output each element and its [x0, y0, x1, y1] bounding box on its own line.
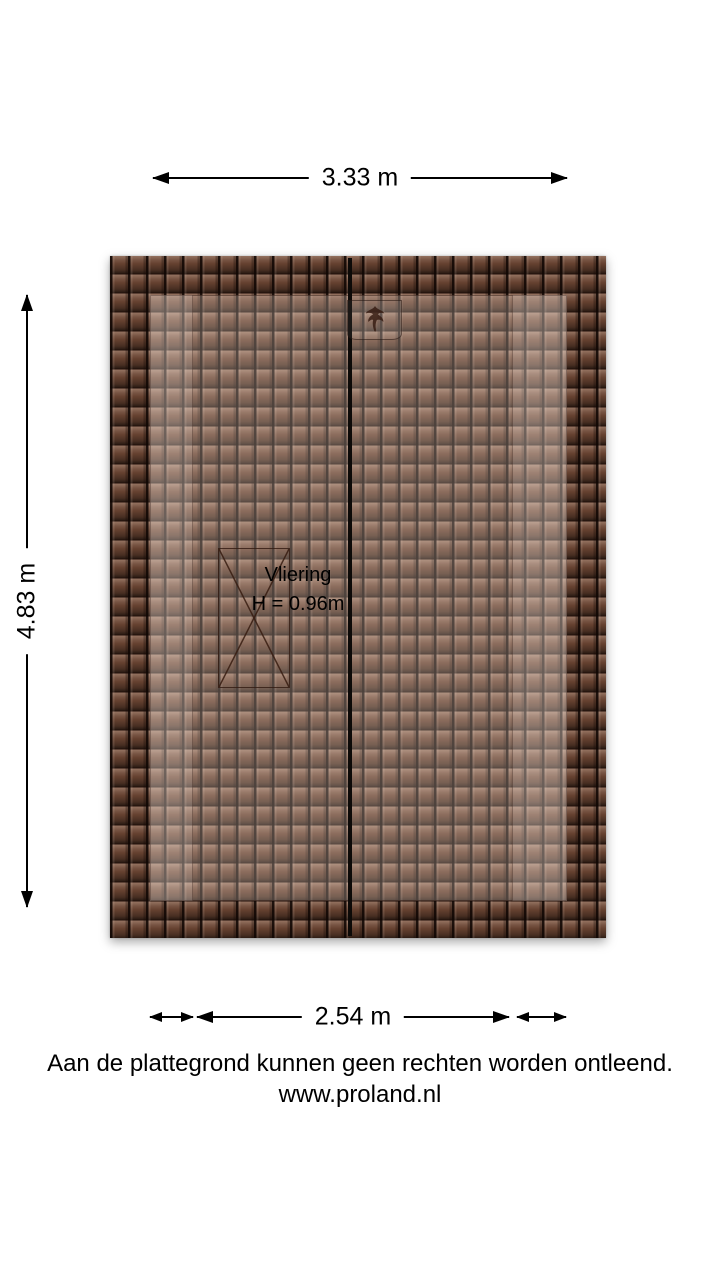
room-name: Vliering: [198, 561, 398, 590]
arrow-left-icon: [149, 1012, 162, 1022]
arrow-up-icon: [21, 294, 33, 311]
footer: Aan de plattegrond kunnen geen rechten w…: [0, 1048, 720, 1110]
dimension-left-label: 4.83 m: [13, 548, 42, 654]
arrow-right-icon: [551, 172, 568, 184]
disclaimer-text: Aan de plattegrond kunnen geen rechten w…: [0, 1048, 720, 1079]
room-height: H = 0.96m: [198, 590, 398, 619]
dimension-bottom: 2.54 m: [197, 1005, 509, 1029]
roof-hatch-icon: [362, 305, 388, 335]
roof-edge-strip-right: [512, 295, 567, 901]
dimension-bottom-label: 2.54 m: [302, 1003, 404, 1032]
arrow-right-icon: [493, 1011, 510, 1023]
arrow-left-icon: [196, 1011, 213, 1023]
arrow-right-icon: [554, 1012, 567, 1022]
dimension-bottom-right-strip: [517, 1005, 566, 1029]
website-text: www.proland.nl: [0, 1079, 720, 1110]
dimension-bottom-left-strip: [150, 1005, 193, 1029]
roof-plan: Vliering H = 0.96m: [110, 256, 606, 938]
arrow-left-icon: [516, 1012, 529, 1022]
dimension-top-label: 3.33 m: [309, 164, 411, 193]
dimension-top: 3.33 m: [153, 166, 567, 190]
roof-hatch: [347, 300, 402, 340]
room-label: Vliering H = 0.96m: [198, 561, 398, 619]
roof-edge-strip-left: [150, 295, 193, 901]
dimension-left: 4.83 m: [15, 295, 39, 907]
arrow-right-icon: [181, 1012, 194, 1022]
arrow-down-icon: [21, 891, 33, 908]
arrow-left-icon: [152, 172, 169, 184]
